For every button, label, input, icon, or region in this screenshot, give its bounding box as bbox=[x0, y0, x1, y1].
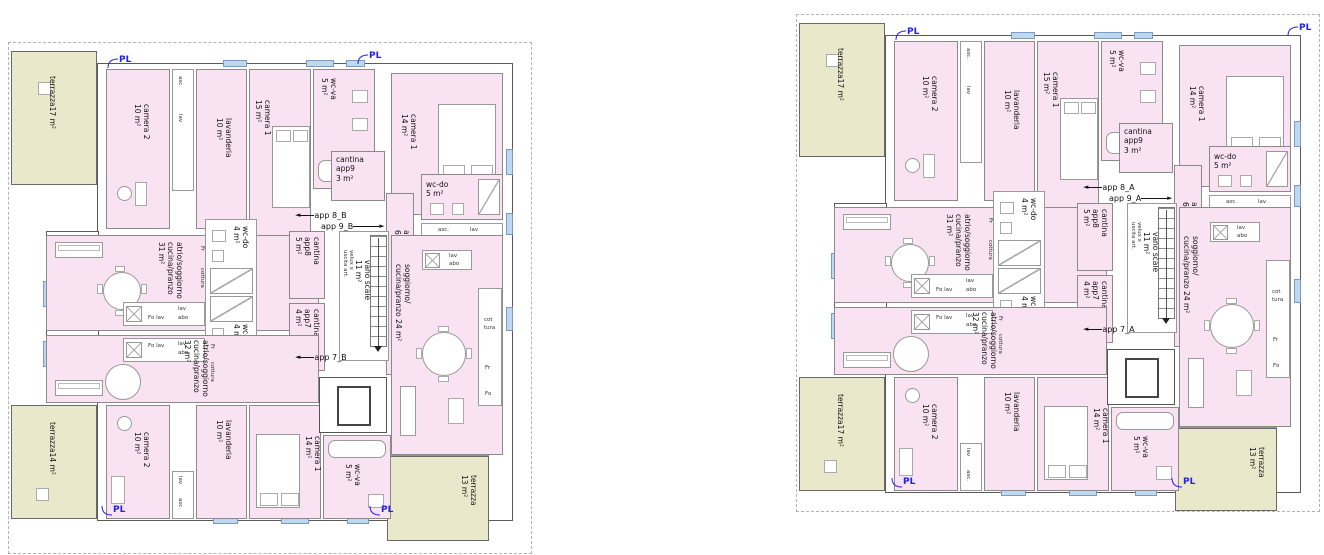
terrace-top-left: terrazza17 m² bbox=[799, 23, 885, 157]
sofa bbox=[55, 380, 103, 396]
room-area: 5 m² bbox=[1132, 436, 1141, 458]
sink-label: lav bbox=[1237, 225, 1245, 231]
room-area: cucina/pranzo 24 m² bbox=[1182, 236, 1191, 313]
shaft-lav-asc: lav asc. bbox=[960, 443, 982, 491]
terrace-label: terrazza14 m² bbox=[48, 422, 57, 475]
room-area: 10 m² bbox=[215, 420, 224, 460]
room-area: 31 m² bbox=[157, 242, 166, 299]
terrace-label: terrazza 13 m² bbox=[1248, 447, 1266, 478]
elevator-cab bbox=[1125, 358, 1159, 398]
bed bbox=[1226, 76, 1284, 154]
room-name: cantina bbox=[312, 309, 321, 337]
chair bbox=[1204, 320, 1210, 331]
bathtub bbox=[1116, 412, 1174, 430]
room-lavanderia-top: lavanderia 10 m² bbox=[984, 41, 1035, 201]
oven-dishwasher-label: Fo lav bbox=[148, 343, 164, 349]
room-apartment: app9 bbox=[336, 164, 364, 173]
terrace-bottom-left: terrazza17 m² bbox=[799, 377, 885, 491]
room-name: atrio/soggiorno bbox=[963, 214, 972, 271]
sink bbox=[1000, 202, 1014, 214]
exit-label: uscita art. bbox=[1130, 222, 1136, 250]
room-label: atrio/soggiorno cucina/pranzo 31 m² bbox=[945, 214, 972, 271]
floor-plan-b: terrazza17 m² terrazza14 m² terrazza 13 … bbox=[8, 42, 532, 554]
chair bbox=[1226, 348, 1237, 354]
cooktop-label2: tura bbox=[484, 325, 495, 331]
room-area: 10 m² bbox=[1003, 392, 1012, 432]
pillow bbox=[1081, 102, 1096, 114]
room-area: 4 m² bbox=[232, 226, 241, 248]
pl-label: PL bbox=[1183, 477, 1195, 487]
entrance-app9: app 9_B► bbox=[321, 222, 385, 231]
room-area: 14 m² bbox=[304, 436, 313, 471]
entrance-app7: ◄app 7_A bbox=[1083, 325, 1135, 334]
room-area: 14 m² bbox=[400, 114, 409, 149]
velux-note: velux x uscita art. bbox=[342, 250, 354, 278]
pillow bbox=[293, 130, 308, 142]
room-name: wc-do bbox=[1214, 152, 1236, 161]
room-name: lavanderia bbox=[224, 118, 233, 158]
room-label: camera 2 10 m² bbox=[921, 404, 939, 439]
room-name: cantina bbox=[312, 237, 321, 265]
room-label: cantina app7 4 m² bbox=[294, 309, 321, 337]
oven-dishwasher-label: Fo lav bbox=[936, 315, 952, 321]
room-wcdo5: wc-do 5 m² bbox=[421, 174, 503, 220]
pl-label: PL bbox=[1299, 23, 1311, 33]
terrace-bottom-right: terrazza 13 m² bbox=[387, 456, 489, 541]
kitchen-counter: Fo lav lav abo bbox=[123, 302, 205, 326]
chair bbox=[115, 266, 125, 272]
terrace-label: terrazza17 m² bbox=[836, 394, 845, 447]
room-name: camera 1 bbox=[1101, 408, 1110, 443]
pl-leader-icon bbox=[369, 505, 381, 519]
room-name: atrio/soggiorno bbox=[175, 242, 184, 299]
terrace-bottom-left-label: terrazza14 m² bbox=[48, 422, 57, 475]
pillow bbox=[1069, 465, 1087, 478]
terrace-bottom-left-label: terrazza17 m² bbox=[836, 394, 845, 447]
bed bbox=[438, 104, 496, 182]
toilet bbox=[352, 118, 368, 131]
terrace-label: terrazza 13 m² bbox=[460, 475, 478, 506]
room-name: camera 1 bbox=[1051, 72, 1060, 107]
room-label: wc-va 5 m² bbox=[344, 464, 362, 486]
window bbox=[1011, 32, 1035, 39]
terrace-label: terrazza17 m² bbox=[48, 76, 57, 129]
fridge-label: Fr bbox=[485, 365, 490, 371]
sink bbox=[1156, 466, 1172, 480]
room-label: camera 1 15 m² bbox=[254, 100, 272, 135]
pl-leader-icon bbox=[101, 505, 113, 519]
room-name: camera 2 bbox=[930, 76, 939, 111]
shaft-asc-label: asc. bbox=[965, 470, 971, 481]
stair-down-arrow-icon bbox=[1162, 318, 1170, 324]
room-name: camera 1 bbox=[409, 114, 418, 149]
room-area: 31 m² bbox=[945, 214, 954, 271]
room-name2: cucina/pranzo bbox=[954, 214, 963, 271]
room-area: 5 m² bbox=[1082, 209, 1091, 237]
room-camera2-top: camera 2 10 m² bbox=[894, 41, 958, 201]
room-label: lavanderia 10 m² bbox=[1003, 392, 1021, 432]
pl-marker: PL bbox=[895, 27, 919, 41]
cooktop-label2: tura bbox=[1272, 297, 1283, 303]
pl-label: PL bbox=[119, 55, 131, 65]
exit-label: uscita art. bbox=[342, 250, 348, 278]
desk-chair bbox=[905, 158, 920, 173]
room-label: cantina app9 3 m² bbox=[336, 155, 364, 183]
room-label: camera 2 10 m² bbox=[133, 104, 151, 139]
window bbox=[1094, 32, 1122, 39]
terrace-bottom-left: terrazza14 m² bbox=[11, 405, 97, 519]
side-table bbox=[448, 398, 464, 424]
room-area: 15 m² bbox=[1042, 72, 1051, 107]
shower bbox=[210, 296, 253, 322]
pl-leader-icon bbox=[107, 55, 119, 69]
room-label: soggiorno/ cucina/pranzo 24 m² bbox=[394, 264, 412, 341]
room-wcdo5: wc-do 5 m² bbox=[1209, 146, 1291, 192]
fridge-label: Fr bbox=[209, 344, 215, 349]
cooktop bbox=[126, 306, 142, 322]
leader-line bbox=[1088, 329, 1102, 330]
sink-label2: abo bbox=[449, 261, 459, 267]
terrace-skylight bbox=[36, 488, 49, 501]
room-label: camera 2 10 m² bbox=[133, 432, 151, 467]
entrance-app7-label: app 7_A bbox=[1102, 325, 1134, 334]
pl-marker: PL bbox=[1287, 23, 1311, 37]
room-area: 3 m² bbox=[1124, 146, 1152, 155]
pillow bbox=[1048, 465, 1066, 478]
room-area: 5 m² bbox=[1108, 50, 1117, 72]
room-name2: cucina/pranzo bbox=[980, 312, 989, 369]
cooktop bbox=[914, 278, 930, 294]
pl-leader-icon bbox=[357, 51, 369, 65]
room-label: camera 1 14 m² bbox=[1092, 408, 1110, 443]
room-name: camera 1 bbox=[1197, 86, 1206, 121]
pillow bbox=[281, 493, 299, 506]
pl-leader-icon bbox=[1171, 477, 1183, 491]
sofa bbox=[400, 386, 416, 436]
window bbox=[306, 60, 334, 67]
room-label: camera 1 14 m² bbox=[304, 436, 322, 471]
room-camera1-14-bottom: camera 1 14 m² bbox=[249, 405, 321, 519]
window bbox=[223, 60, 247, 67]
dining-table bbox=[1210, 304, 1254, 348]
pillow bbox=[1064, 102, 1079, 114]
leader-line bbox=[300, 215, 314, 216]
chair bbox=[885, 256, 891, 266]
bed bbox=[272, 126, 310, 208]
room-apartment: app8 bbox=[303, 237, 312, 265]
room-wcva-bottom: wc-va 5 m² bbox=[1111, 407, 1179, 491]
room-label: wc-va 5 m² bbox=[1132, 436, 1150, 458]
entrance-app8-label: app 8_A bbox=[1102, 183, 1134, 192]
room-label: atrio/soggiorno cucina/pranzo 32 m² bbox=[971, 312, 998, 369]
shaft-lav-asc: lav asc. bbox=[172, 471, 194, 519]
sink-label2: abo bbox=[966, 287, 976, 293]
room-area: 3 m² bbox=[336, 174, 364, 183]
stair-centerline bbox=[1166, 210, 1167, 318]
leader-line bbox=[300, 357, 314, 358]
room-area: 4 m² bbox=[1020, 198, 1029, 220]
room-label: wc-do 5 m² bbox=[1214, 152, 1236, 171]
room-name: wc-do bbox=[241, 226, 250, 248]
window bbox=[506, 149, 513, 175]
floor-plan-a: terrazza17 m² terrazza17 m² terrazza 13 … bbox=[796, 14, 1320, 512]
room-name: camera 1 bbox=[313, 436, 322, 471]
chair bbox=[438, 376, 449, 382]
entrance-app8: ◄app 8_B bbox=[295, 211, 347, 220]
shower bbox=[1266, 151, 1288, 187]
toilet bbox=[212, 250, 224, 262]
room-camera2-top: camera 2 10 m² bbox=[106, 69, 170, 229]
stairwell: velux x uscita art. vano scale 11 m² bbox=[1127, 203, 1177, 333]
room-area: 4 m² bbox=[1082, 281, 1091, 309]
stairwell: velux x uscita art. vano scale 11 m² bbox=[339, 231, 389, 361]
room-area: 5 m² bbox=[426, 189, 448, 198]
pl-label: PL bbox=[903, 477, 915, 487]
room-label: camera 1 14 m² bbox=[1188, 86, 1206, 121]
stair-area: 11 m² bbox=[1142, 232, 1151, 272]
sink-label: lav bbox=[178, 306, 186, 312]
wardrobe bbox=[899, 448, 913, 476]
sofa bbox=[843, 214, 891, 230]
room-label: atrio/soggiorno cucina/pranzo 31 m² bbox=[157, 242, 184, 299]
sink bbox=[1218, 175, 1232, 187]
cottura-label: cottura bbox=[997, 334, 1003, 354]
shaft-lav-label: lav bbox=[965, 448, 971, 456]
floor-plan-drawing: terrazza17 m² terrazza14 m² terrazza 13 … bbox=[0, 0, 1324, 555]
shaft-lav-label: lav bbox=[965, 86, 971, 94]
room-area: 5 m² bbox=[294, 237, 303, 265]
terrace-bottom-right-label: terrazza bbox=[469, 475, 478, 506]
side-table bbox=[1236, 370, 1252, 396]
pl-leader-icon bbox=[895, 27, 907, 41]
sofa bbox=[843, 352, 891, 368]
dining-table bbox=[893, 336, 929, 372]
room-living31: atrio/soggiorno cucina/pranzo 31 m² Fo l… bbox=[834, 207, 1107, 303]
desk-chair bbox=[117, 186, 132, 201]
shower bbox=[998, 268, 1041, 294]
wardrobe bbox=[111, 476, 125, 504]
terrace-skylight bbox=[824, 460, 837, 473]
room-lavanderia-bottom: lavanderia 10 m² bbox=[196, 405, 247, 519]
terrace-top-left: terrazza17 m² bbox=[11, 51, 97, 185]
fridge-label: Fr bbox=[997, 316, 1003, 321]
shaft-asc-label: asc. bbox=[1226, 199, 1237, 205]
room-label: cantina app9 3 m² bbox=[1124, 127, 1152, 155]
window bbox=[1294, 185, 1301, 207]
desk bbox=[923, 154, 935, 178]
kitchen-counter: cot tura Fr Fo bbox=[478, 288, 502, 406]
cooktop bbox=[914, 314, 930, 330]
bathtub bbox=[328, 440, 386, 458]
window bbox=[1294, 279, 1301, 303]
sofa bbox=[55, 242, 103, 258]
room-cantina-app9: cantina app9 3 m² bbox=[1119, 123, 1173, 173]
room-area: 4 m² bbox=[294, 309, 303, 337]
room-area: 32 m² bbox=[971, 312, 980, 369]
chair bbox=[141, 284, 147, 294]
terrace-label: terrazza17 m² bbox=[836, 48, 845, 101]
room-apartment: app8 bbox=[1091, 209, 1100, 237]
room-name: soggiorno/ bbox=[1191, 236, 1200, 313]
arrow-right-icon: ► bbox=[379, 223, 384, 230]
room-area: cucina/pranzo 24 m² bbox=[394, 264, 403, 341]
room-name: wc-va bbox=[1141, 436, 1150, 458]
sink bbox=[212, 230, 226, 242]
bed bbox=[256, 434, 300, 508]
toilet bbox=[1240, 175, 1252, 187]
entrance-app8: ◄app 8_A bbox=[1083, 183, 1135, 192]
room-cantina-app8: cantina app8 5 m² bbox=[1077, 203, 1113, 271]
cooktop-label: cot bbox=[1272, 289, 1281, 295]
room-name: soggiorno/ bbox=[403, 264, 412, 341]
chair bbox=[416, 348, 422, 359]
room-cantina-app9: cantina app9 3 m² bbox=[331, 151, 385, 201]
entrance-app8-label: app 8_B bbox=[314, 211, 346, 220]
toilet bbox=[452, 203, 464, 215]
sofa bbox=[1188, 358, 1204, 408]
terrace-top-left-label: terrazza17 m² bbox=[48, 76, 57, 129]
velux-note: velux x uscita art. bbox=[1130, 222, 1142, 250]
room-name: camera 1 bbox=[263, 100, 272, 135]
room-label: wc-va 5 m² bbox=[1108, 50, 1126, 72]
room-area: 5 m² bbox=[1214, 161, 1236, 170]
window bbox=[506, 213, 513, 235]
pl-leader-icon bbox=[891, 477, 903, 491]
elevator-shaft bbox=[319, 377, 387, 433]
window bbox=[1134, 32, 1153, 39]
chair bbox=[466, 348, 472, 359]
room-area: 5 m² bbox=[344, 464, 353, 486]
pl-label: PL bbox=[113, 505, 125, 515]
room-label: camera 1 14 m² bbox=[400, 114, 418, 149]
entrance-app7-label: app 7_B bbox=[314, 353, 346, 362]
room-camera2-bottom: camera 2 10 m² bbox=[106, 405, 170, 519]
oven-label: Fo bbox=[1273, 363, 1279, 369]
sink bbox=[1140, 62, 1156, 75]
pl-label: PL bbox=[369, 51, 381, 61]
shaft-lav-label: lav bbox=[177, 114, 183, 122]
shower bbox=[210, 268, 253, 294]
window bbox=[1294, 121, 1301, 147]
shaft-asc-label: asc. bbox=[177, 498, 183, 509]
fridge-label: Fr bbox=[1273, 337, 1278, 343]
pillow bbox=[260, 493, 278, 506]
oven-label: Fo bbox=[485, 391, 491, 397]
room-name: wc-va bbox=[353, 464, 362, 486]
entrance-app9-label: app 9_A bbox=[1109, 194, 1141, 203]
room-area: 14 m² bbox=[1188, 86, 1197, 121]
room-name: cantina bbox=[1124, 127, 1152, 136]
shaft-asc-label: asc. bbox=[177, 76, 183, 87]
desk-chair bbox=[905, 388, 920, 403]
pillow bbox=[276, 130, 291, 142]
shaft-asc-label: asc. bbox=[438, 227, 449, 233]
dining-table bbox=[105, 364, 141, 400]
room-apartment: app9 bbox=[1124, 136, 1152, 145]
room-lavanderia-bottom: lavanderia 10 m² bbox=[984, 377, 1035, 491]
terrace-top-left-label: terrazza17 m² bbox=[836, 48, 845, 101]
room-lavanderia-top: lavanderia 10 m² bbox=[196, 69, 247, 229]
leader-line bbox=[353, 226, 379, 227]
sink-label: lav bbox=[449, 253, 457, 259]
desk bbox=[135, 182, 147, 206]
stair-down-arrow-icon bbox=[374, 346, 382, 352]
leader-line bbox=[1088, 187, 1102, 188]
room-camera2-bottom: camera 2 10 m² bbox=[894, 377, 958, 491]
sink-label2: abo bbox=[178, 315, 188, 321]
room-area: 10 m² bbox=[133, 432, 142, 467]
cooktop-label: cot bbox=[484, 317, 493, 323]
room-name: wc-do bbox=[1029, 198, 1038, 220]
kitchen-counter: cot tura Fr Fo bbox=[1266, 260, 1290, 378]
room-area: 5 m² bbox=[320, 78, 329, 100]
room-name: camera 2 bbox=[142, 432, 151, 467]
sink-label2: abo bbox=[1237, 233, 1247, 239]
room-name: camera 2 bbox=[142, 104, 151, 139]
shaft-asc-label: asc. bbox=[965, 48, 971, 59]
room-name: cantina bbox=[336, 155, 364, 164]
room-apartment: app7 bbox=[303, 309, 312, 337]
room-area: 15 m² bbox=[254, 100, 263, 135]
toilet bbox=[1000, 222, 1012, 234]
room-camera1-14-bottom: camera 1 14 m² bbox=[1037, 377, 1109, 491]
shaft-lav-label: lav bbox=[1258, 199, 1266, 205]
shaft-lav-label: lav bbox=[177, 476, 183, 484]
room-label: wc-do 4 m² bbox=[232, 226, 250, 248]
room-living32: Fo lav lav abo atrio/soggiorno cucina/pr… bbox=[834, 307, 1107, 375]
oven-dishwasher-label: Fo lav bbox=[148, 315, 164, 321]
room-living24: soggiorno/ cucina/pranzo 24 m² lav abo c… bbox=[391, 235, 503, 455]
room-label: soggiorno/ cucina/pranzo 24 m² bbox=[1182, 236, 1200, 313]
room-name: wc-va bbox=[329, 78, 338, 100]
chair bbox=[438, 326, 449, 332]
room-name: lavanderia bbox=[224, 420, 233, 460]
room-living31: atrio/soggiorno cucina/pranzo 31 m² Fo l… bbox=[46, 235, 319, 331]
stair-area: 11 m² bbox=[354, 260, 363, 300]
desk-chair bbox=[117, 416, 132, 431]
window bbox=[506, 307, 513, 331]
room-name: cantina bbox=[1100, 281, 1109, 309]
room-living32: Fo lav lav abo atrio/soggiorno cucina/pr… bbox=[46, 335, 319, 403]
chair bbox=[903, 238, 913, 244]
leader-line bbox=[1141, 198, 1167, 199]
room-name: camera 2 bbox=[930, 404, 939, 439]
room-label: wc-do 5 m² bbox=[426, 180, 448, 199]
chair bbox=[1254, 320, 1260, 331]
pl-marker: PL bbox=[1171, 477, 1195, 491]
room-label: wc-va 5 m² bbox=[320, 78, 338, 100]
entrance-app7: ◄app 7_B bbox=[295, 353, 347, 362]
entrance-app9: app 9_A► bbox=[1109, 194, 1173, 203]
shaft-asc-lav: asc. lav bbox=[960, 41, 982, 163]
bed bbox=[1044, 406, 1088, 480]
entrance-app9-label: app 9_B bbox=[321, 222, 353, 231]
pl-marker: PL bbox=[107, 55, 131, 69]
sink-basin bbox=[425, 253, 440, 268]
cottura-label: cottura bbox=[209, 362, 215, 382]
room-label: camera 1 15 m² bbox=[1042, 72, 1060, 107]
room-label: lavanderia 10 m² bbox=[1003, 90, 1021, 130]
laundry-counter: lav abo bbox=[422, 250, 472, 270]
room-label: lavanderia 10 m² bbox=[215, 420, 233, 460]
shaft-lav-label: lav bbox=[470, 227, 478, 233]
room-area: 14 m² bbox=[1092, 408, 1101, 443]
bed bbox=[1060, 98, 1098, 180]
pl-marker: PL bbox=[357, 51, 381, 65]
room-area: 10 m² bbox=[215, 118, 224, 158]
shower bbox=[478, 179, 500, 215]
room-cantina-app8: cantina app8 5 m² bbox=[289, 231, 325, 299]
